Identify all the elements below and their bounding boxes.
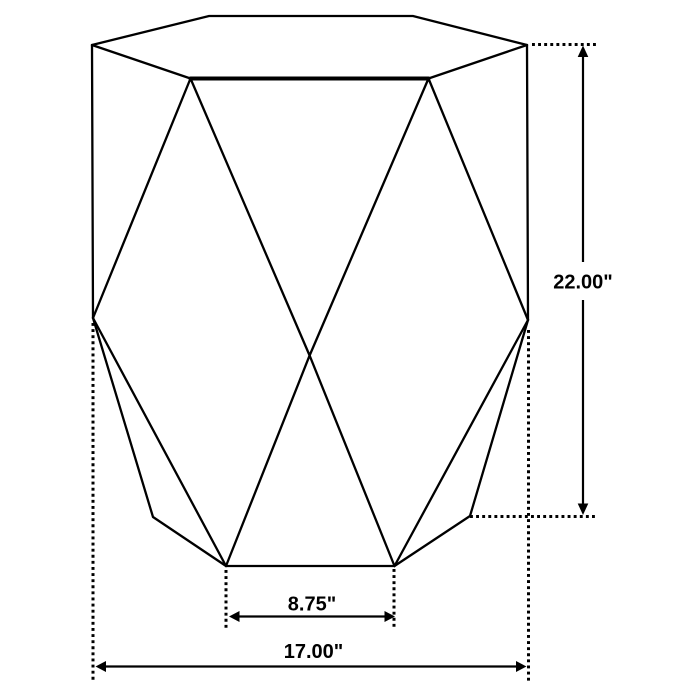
- svg-text:17.00": 17.00": [284, 641, 344, 663]
- svg-text:8.75": 8.75": [288, 594, 336, 616]
- svg-text:22.00": 22.00": [553, 272, 613, 294]
